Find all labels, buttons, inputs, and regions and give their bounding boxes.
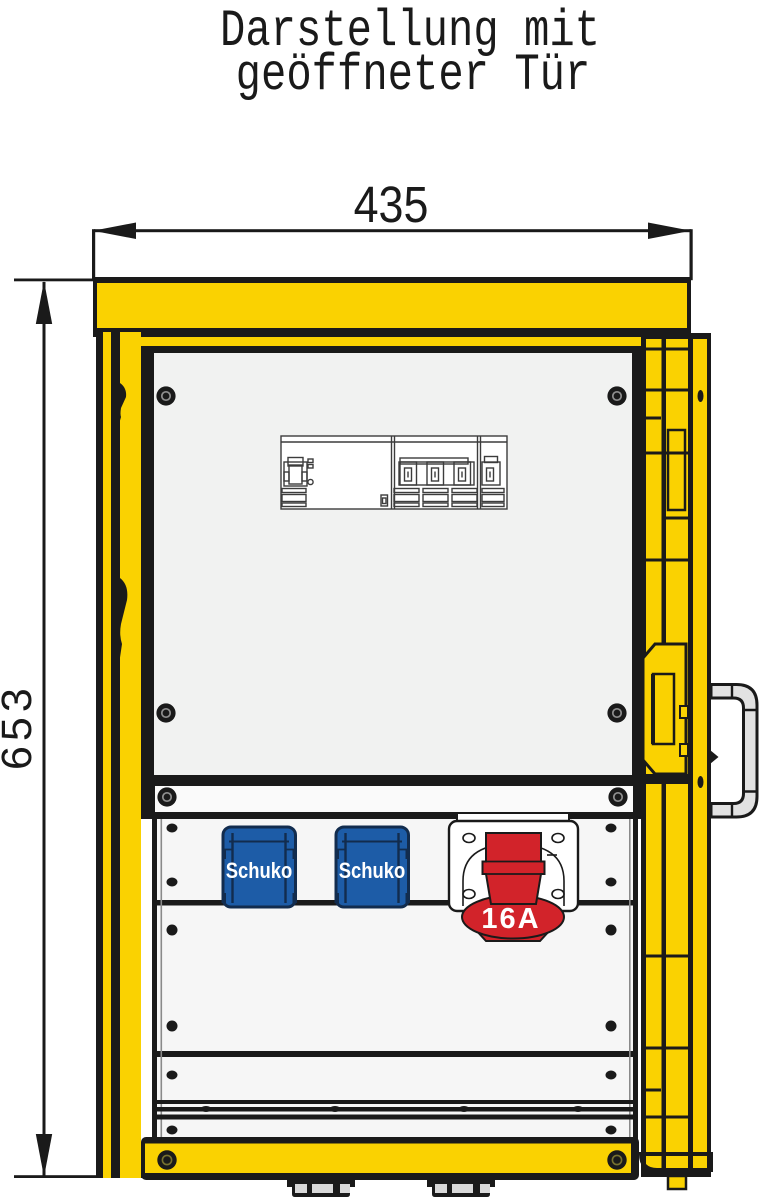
svg-text:geöffneter Tür: geöffneter Tür: [236, 47, 591, 105]
svg-text:Schuko: Schuko: [226, 858, 293, 883]
svg-text:435: 435: [354, 177, 429, 233]
svg-text:653: 653: [0, 683, 41, 770]
svg-text:16A: 16A: [481, 903, 540, 935]
svg-text:Schuko: Schuko: [339, 858, 406, 883]
